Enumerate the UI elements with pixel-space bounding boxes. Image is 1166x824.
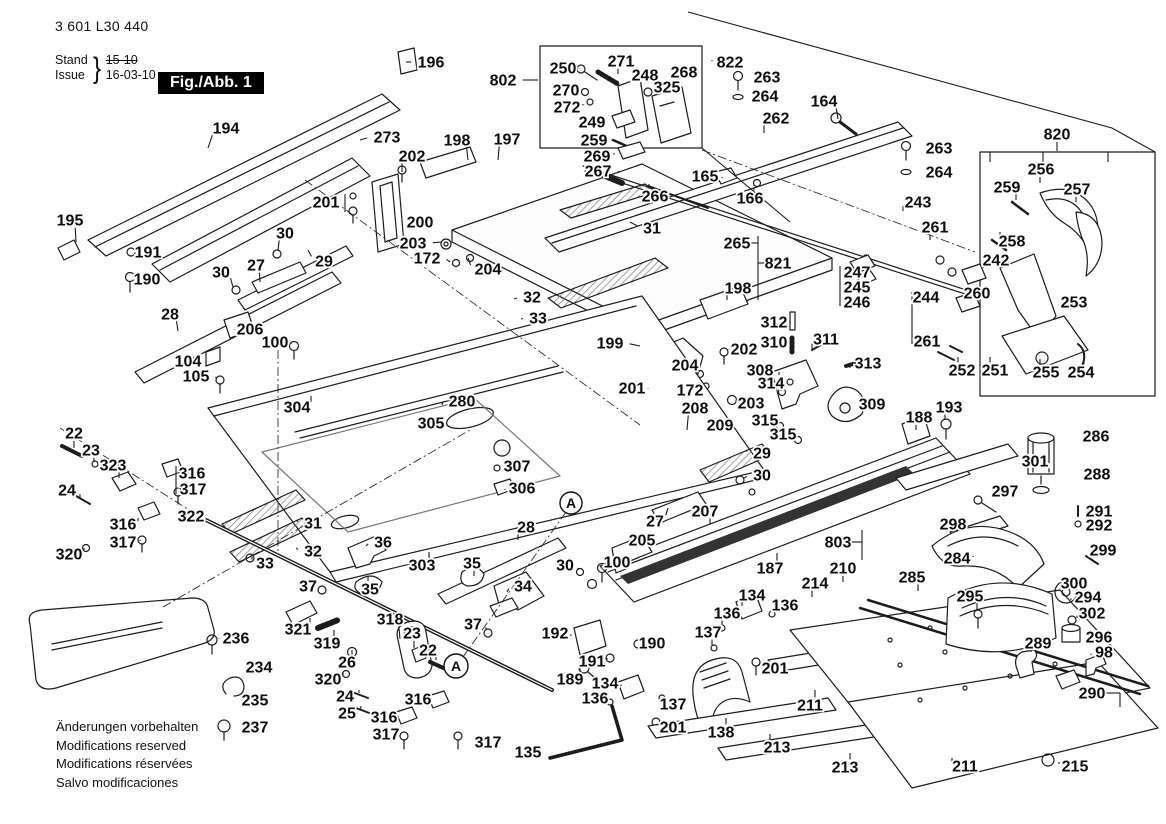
part-callout: 37	[464, 617, 482, 634]
detail-box-2	[950, 152, 1155, 396]
part-callout: 27	[247, 258, 265, 275]
part-callout: 138	[708, 725, 735, 742]
part-callout: 166	[737, 191, 764, 208]
part-callout: 207	[692, 504, 719, 521]
part-callout: 821	[765, 256, 792, 273]
footer-notes: Änderungen vorbehalten Modifications res…	[56, 718, 198, 792]
leader-line	[75, 228, 76, 242]
part-callout: 28	[161, 307, 179, 324]
part-callout: 215	[1062, 759, 1089, 776]
part-callout: 325	[654, 80, 681, 97]
detail-marker-label: A	[566, 495, 576, 511]
footer-note-en: Modifications reserved	[56, 737, 198, 756]
part-callout: 261	[914, 334, 941, 351]
part-callout: 201	[762, 661, 789, 678]
part-callout: 294	[1075, 590, 1102, 607]
part-callout: 307	[504, 459, 531, 476]
part-callout: 213	[764, 740, 791, 757]
part-callout: 315	[770, 427, 797, 444]
part-callout: 266	[642, 189, 669, 206]
part-callout: 252	[949, 363, 976, 380]
part-callout: 208	[682, 401, 709, 418]
part-callout: 254	[1068, 365, 1095, 382]
part-callout: 316	[405, 692, 432, 709]
part-callout: 30	[556, 558, 574, 575]
part-callout: 269	[584, 149, 611, 166]
part-callout: 187	[757, 561, 784, 578]
leader-line	[230, 278, 233, 287]
part-callout: 301	[1022, 454, 1049, 471]
part-callout: 30	[753, 468, 771, 485]
part-callout: 24	[336, 689, 354, 706]
part-callout: 311	[813, 332, 839, 349]
part-callout: 297	[992, 484, 1019, 501]
part-callout: 29	[315, 254, 333, 271]
leader-line	[514, 298, 517, 299]
part-callout: 263	[926, 141, 953, 158]
part-callout: 172	[677, 383, 704, 400]
part-callout: 23	[82, 443, 100, 460]
figure-label: Fig./Abb. 1	[158, 72, 264, 94]
part-callout: 22	[419, 643, 437, 660]
part-callout: 32	[304, 544, 322, 561]
part-callout: 195	[57, 213, 84, 230]
part-callout: 289	[1025, 636, 1052, 653]
part-callout: 188	[906, 410, 933, 427]
part-callout: 33	[529, 311, 547, 328]
part-callout: 31	[304, 516, 322, 533]
part-callout: 29	[753, 446, 771, 463]
part-callout: 312	[761, 315, 788, 332]
part-callout: 317	[373, 727, 400, 744]
part-callout: 201	[660, 720, 687, 737]
leader-line	[360, 138, 367, 140]
part-callout: 201	[619, 381, 646, 398]
part-callout: 271	[608, 54, 635, 71]
part-callout: 24	[58, 483, 76, 500]
part-callout: 204	[475, 262, 502, 279]
part-callout: 803	[825, 535, 852, 552]
part-callout: 26	[338, 655, 356, 672]
part-callout: 204	[672, 358, 699, 375]
part-callout: 305	[418, 416, 445, 433]
part-callout: 210	[830, 561, 857, 578]
part-callout: 198	[444, 133, 471, 150]
part-callout: 290	[1079, 686, 1106, 703]
part-callout: 321	[285, 622, 312, 639]
part-callout: 25	[338, 706, 356, 723]
part-callout: 137	[660, 697, 687, 714]
part-callout: 257	[1064, 182, 1091, 199]
part-callout: 136	[772, 598, 799, 615]
part-callout: 314	[758, 376, 785, 393]
part-callout: 134	[739, 588, 766, 605]
part-callout: 288	[1084, 467, 1111, 484]
part-callout: 306	[509, 481, 536, 498]
part-callout: 33	[256, 556, 274, 573]
part-callout: 198	[725, 281, 752, 298]
leader-line	[308, 250, 311, 256]
part-callout: 164	[811, 94, 838, 111]
part-callout: 196	[418, 55, 445, 72]
part-callout: 316	[110, 517, 137, 534]
part-callout: 280	[449, 394, 476, 411]
part-callout: 214	[802, 576, 829, 593]
title-block: 3 601 L30 440 Stand Issue } 15-10 16-03-…	[55, 18, 156, 87]
issue-label: Issue	[55, 68, 88, 83]
part-callout: 23	[403, 626, 421, 643]
part-callout: 320	[56, 547, 83, 564]
leader-line	[618, 171, 620, 172]
part-callout: 191	[135, 245, 162, 262]
part-callout: 100	[604, 555, 631, 572]
part-callout: 320	[315, 672, 342, 689]
part-callout: 317	[180, 482, 207, 499]
rail-194-artwork	[58, 48, 417, 393]
part-callout: 255	[1033, 365, 1060, 382]
part-callout: 27	[646, 514, 664, 531]
part-callout: 261	[922, 220, 949, 237]
part-callout: 235	[242, 693, 269, 710]
part-callout: 211	[952, 759, 978, 776]
leader-line	[296, 548, 298, 550]
part-callout: 317	[110, 535, 137, 552]
part-callout: 34	[514, 579, 532, 596]
part-callout: 319	[314, 636, 341, 653]
part-callout: 259	[994, 180, 1021, 197]
part-callout: 310	[761, 335, 788, 352]
part-callout: 172	[414, 251, 441, 268]
part-callout: 322	[178, 509, 205, 526]
part-callout: 249	[579, 115, 606, 132]
part-callout: 30	[212, 265, 230, 282]
part-callout: 272	[554, 100, 581, 117]
part-callout: 98	[1095, 645, 1113, 662]
part-callout: 197	[494, 132, 521, 149]
part-callout: 262	[763, 111, 790, 128]
part-callout: 201	[313, 195, 340, 212]
leader-line	[744, 476, 747, 478]
part-callout: 270	[553, 83, 580, 100]
part-callout: 31	[643, 221, 661, 238]
part-callout: 246	[844, 295, 871, 312]
part-callout: 258	[999, 234, 1026, 251]
part-callout: 28	[517, 520, 535, 537]
part-callout: 242	[983, 253, 1010, 270]
part-callout: 265	[724, 236, 751, 253]
part-callout: 284	[944, 551, 971, 568]
part-callout: 286	[1083, 429, 1110, 446]
part-callout: 205	[629, 533, 656, 550]
exploded-parts-diagram: 1941962732021981978022012002031722042919…	[0, 0, 1166, 824]
part-callout: 317	[475, 735, 502, 752]
part-callout: 192	[542, 626, 569, 643]
part-callout: 193	[936, 400, 963, 417]
part-callout: 260	[964, 286, 991, 303]
part-callout: 267	[585, 164, 612, 181]
part-callout: 802	[490, 73, 517, 90]
part-callout: 35	[361, 582, 379, 599]
part-callout: 209	[707, 418, 734, 435]
part-callout: 194	[213, 121, 240, 138]
stand-issue-values: 15-10 16-03-10	[106, 53, 156, 83]
part-callout: 251	[982, 363, 1009, 380]
part-callout: 820	[1044, 127, 1071, 144]
stand-date: 15-10	[106, 53, 156, 68]
part-callout: 234	[246, 660, 273, 677]
part-callout: 264	[926, 165, 953, 182]
part-callout: 190	[134, 272, 161, 289]
part-callout: 32	[523, 290, 541, 307]
part-callout: 206	[237, 322, 264, 339]
part-callout: 285	[899, 570, 926, 587]
stand-label: Stand	[55, 53, 88, 68]
leader-line	[442, 403, 443, 405]
part-callout: 316	[371, 710, 398, 727]
footer-note-de: Änderungen vorbehalten	[56, 718, 198, 737]
part-callout: 243	[905, 195, 932, 212]
part-callout: 136	[582, 691, 609, 708]
part-callout: 299	[1090, 543, 1117, 560]
stand-issue-labels: Stand Issue	[55, 53, 88, 83]
part-callout: 236	[223, 631, 250, 648]
part-callout: 316	[179, 466, 206, 483]
part-callout: 37	[299, 579, 317, 596]
part-callout: 263	[754, 70, 781, 87]
part-callout: 213	[832, 760, 859, 777]
part-callout: 302	[1079, 606, 1106, 623]
part-callout: 202	[399, 149, 426, 166]
footer-note-fr: Modifications réservées	[56, 755, 198, 774]
part-callout: 30	[276, 226, 294, 243]
part-callout: 323	[100, 458, 127, 475]
leader-line	[433, 242, 442, 243]
part-callout: 822	[717, 55, 744, 72]
leader-line	[521, 318, 523, 319]
part-callout: 237	[242, 720, 269, 737]
bracket-line	[1112, 128, 1155, 152]
part-callout: 250	[550, 61, 577, 78]
brace-glyph: }	[93, 50, 101, 88]
part-callout: 199	[597, 336, 624, 353]
part-callout: 309	[859, 397, 886, 414]
leader-line	[447, 259, 450, 262]
bracket-line	[688, 12, 1112, 128]
part-callout: 22	[65, 426, 83, 443]
part-callout: 200	[407, 215, 434, 232]
part-callout: 100	[262, 335, 289, 352]
parts-diagram-page: 1941962732021981978022012002031722042919…	[0, 0, 1166, 824]
part-callout: 303	[409, 558, 436, 575]
part-callout: 202	[731, 342, 758, 359]
part-callout: 137	[695, 625, 722, 642]
part-callout: 244	[913, 290, 940, 307]
part-callout: 259	[581, 133, 608, 150]
issue-date: 16-03-10	[106, 68, 156, 83]
part-callout: 35	[463, 556, 481, 573]
part-callout: 304	[284, 400, 311, 417]
footer-note-es: Salvo modificaciones	[56, 774, 198, 793]
part-callout: 165	[692, 169, 719, 186]
detail-marker-label: A	[451, 658, 461, 674]
part-number: 3 601 L30 440	[55, 18, 156, 36]
part-callout: 211	[797, 698, 823, 715]
part-callout: 318	[377, 612, 404, 629]
part-callout: 105	[183, 369, 210, 386]
part-callout: 36	[374, 535, 392, 552]
part-callout: 273	[374, 130, 401, 147]
part-callout: 256	[1028, 162, 1055, 179]
part-callout: 292	[1086, 518, 1113, 535]
part-callout: 189	[557, 672, 584, 689]
part-callout: 190	[639, 636, 666, 653]
part-callout: 313	[855, 356, 882, 373]
part-callout: 135	[515, 745, 542, 762]
part-callout: 295	[957, 589, 984, 606]
part-callout: 136	[714, 606, 741, 623]
part-callout: 253	[1061, 295, 1088, 312]
part-callout: 203	[738, 396, 765, 413]
part-callout: 298	[940, 517, 967, 534]
part-callout: 191	[579, 654, 606, 671]
part-callout: 264	[752, 89, 779, 106]
